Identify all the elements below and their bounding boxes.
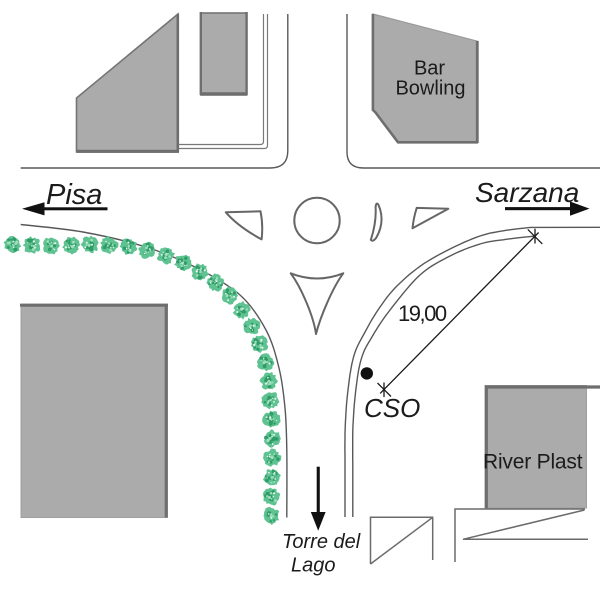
svg-text:Sarzana: Sarzana: [475, 177, 579, 208]
svg-text:Lago: Lago: [291, 555, 336, 577]
svg-text:Torre del: Torre del: [282, 531, 361, 553]
svg-text:Bowling: Bowling: [395, 78, 465, 100]
svg-text:CSO: CSO: [364, 393, 420, 423]
svg-text:Pisa: Pisa: [46, 179, 102, 211]
svg-text:Bar: Bar: [414, 58, 445, 80]
svg-text:19,00: 19,00: [398, 301, 447, 326]
svg-text:River Plast: River Plast: [483, 451, 583, 474]
